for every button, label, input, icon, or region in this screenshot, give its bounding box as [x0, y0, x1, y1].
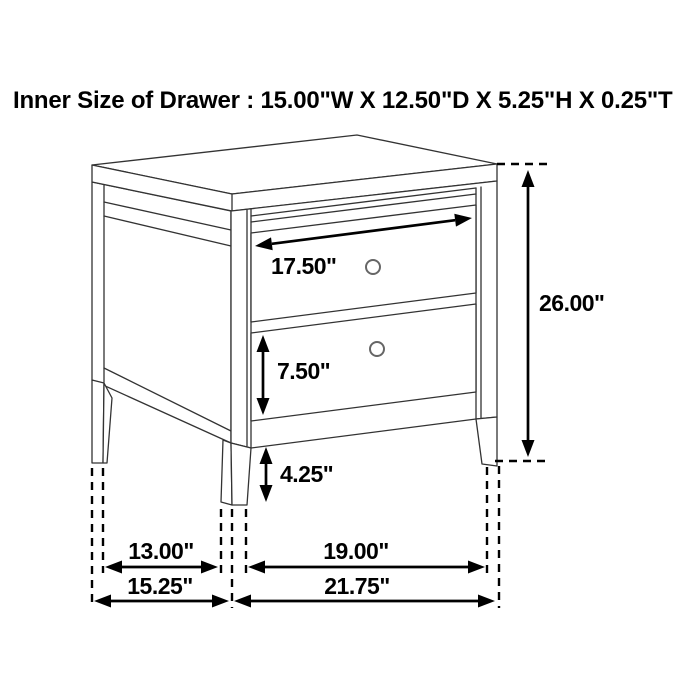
dim-arrowhead: [234, 595, 251, 608]
dim-arrow-overall-height: [522, 170, 535, 457]
drawer-knob-top: [366, 260, 380, 274]
dim-arrowhead: [522, 440, 535, 457]
back-left-leg-taper: [103, 383, 112, 463]
dim-arrowhead: [468, 561, 485, 574]
dim-arrow-leg-height: [260, 447, 273, 502]
dim-arrowhead: [212, 595, 229, 608]
dim-label-leg-height: 4.25": [280, 461, 333, 487]
front-left-leg-front-face: [231, 443, 251, 505]
dim-arrowhead: [105, 561, 122, 574]
dim-arrowhead: [94, 595, 111, 608]
side-panel: [92, 182, 231, 443]
dim-label-overall-width: 21.75": [324, 573, 389, 599]
dim-arrowhead: [478, 595, 495, 608]
dim-arrowhead: [260, 485, 273, 502]
dim-label-drawer-front-height: 7.50": [277, 358, 330, 384]
dim-arrowhead: [260, 447, 273, 464]
dim-label-overall-depth: 15.25": [127, 573, 192, 599]
front-left-leg-side-face: [221, 440, 232, 505]
dim-arrowhead: [522, 170, 535, 187]
dim-label-leg-spacing-depth: 13.00": [128, 538, 193, 564]
nightstand-dimension-drawing: 17.50" 26.00" 7.50" 4.25" 13.00" 15.25" …: [0, 0, 700, 700]
dim-label-drawer-width: 17.50": [271, 253, 336, 279]
dim-label-overall-height: 26.00": [539, 290, 604, 316]
nightstand-drawing: [92, 135, 497, 505]
dimension-diagram-page: Inner Size of Drawer : 15.00"W X 12.50"D…: [0, 0, 700, 700]
back-left-leg: [92, 380, 104, 463]
front-right-leg: [476, 417, 497, 466]
dim-arrowhead: [248, 561, 265, 574]
dim-arrowhead: [201, 561, 218, 574]
dim-label-leg-spacing-width: 19.00": [323, 538, 388, 564]
drawer-knob-bottom: [370, 342, 384, 356]
